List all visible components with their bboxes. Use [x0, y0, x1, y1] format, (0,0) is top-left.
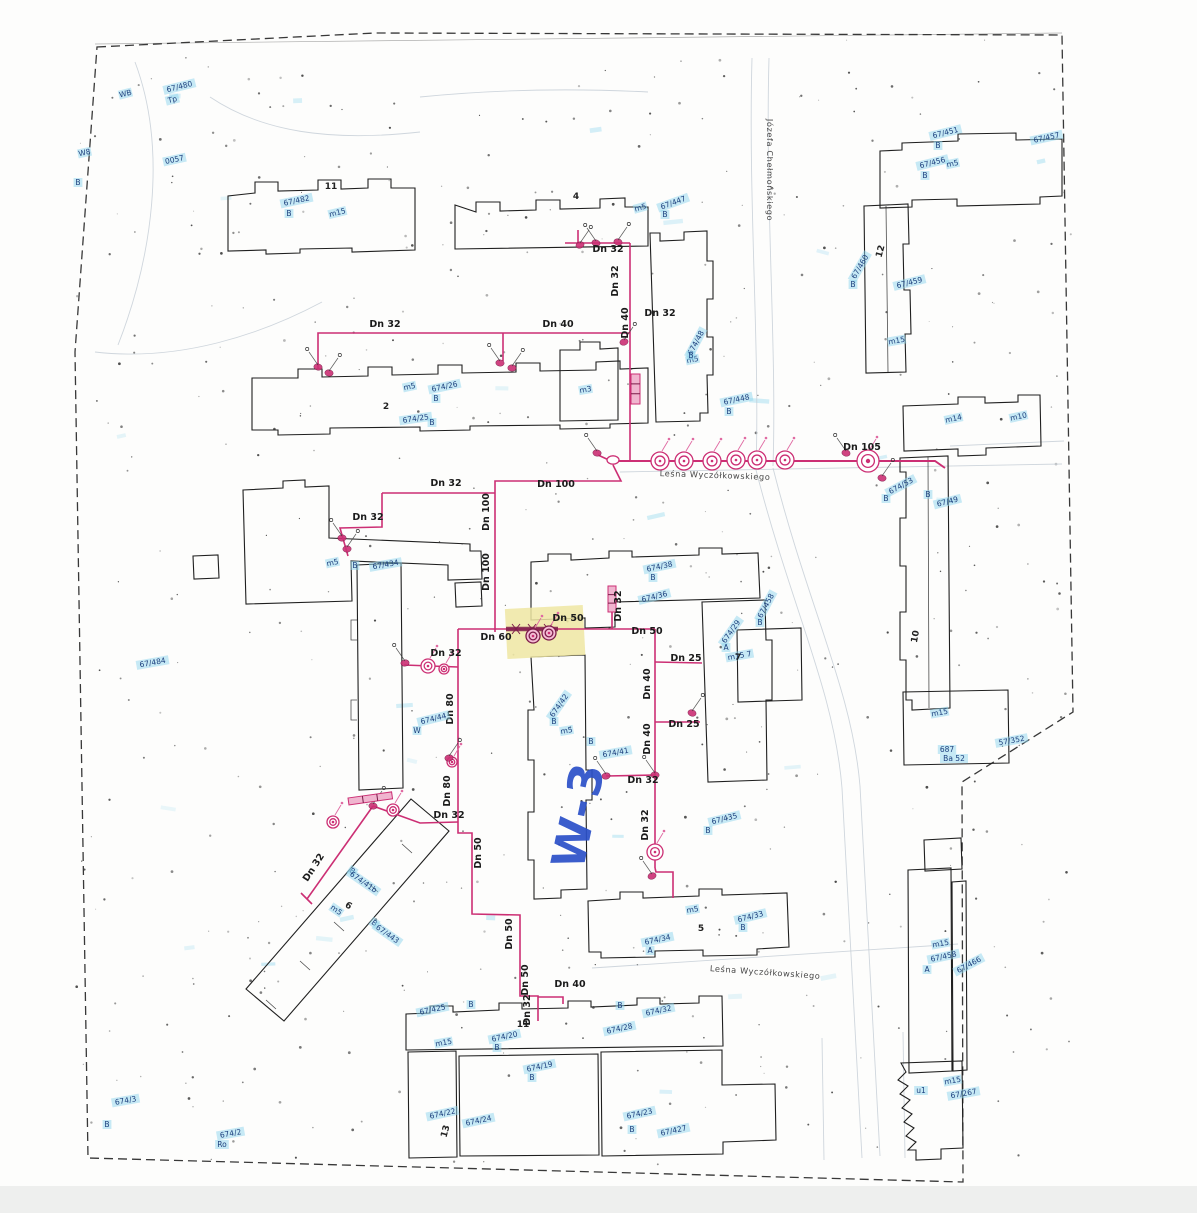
scan-speckle: [304, 156, 305, 157]
scan-speckle: [411, 244, 414, 247]
scan-speckle: [700, 1061, 703, 1064]
scan-speckle: [359, 369, 360, 370]
scan-speckle: [198, 396, 199, 397]
pipe-diameter-label: Dn 60: [480, 632, 512, 643]
scan-speckle: [299, 518, 300, 519]
scan-speckle: [736, 554, 737, 555]
scan-speckle: [669, 645, 672, 648]
scan-speckle: [669, 1103, 672, 1106]
scan-speckle: [514, 977, 516, 979]
scan-speckle: [916, 655, 919, 658]
scan-speckle: [507, 215, 508, 216]
scan-speckle: [1019, 745, 1021, 747]
street-edge-line: [756, 470, 862, 1158]
scan-speckle: [131, 877, 133, 879]
scan-speckle: [871, 140, 873, 142]
parcel-number-label: B: [551, 717, 556, 726]
scan-speckle: [441, 186, 442, 187]
scan-speckle: [635, 1138, 636, 1139]
scan-speckle: [605, 890, 607, 892]
parcel-number-label: 67/434: [372, 558, 400, 571]
scan-speckle: [1037, 291, 1040, 294]
parcel-number-label: B: [529, 1073, 534, 1082]
scan-speckle: [341, 109, 342, 110]
scan-speckle: [309, 952, 312, 955]
scan-speckle: [896, 185, 899, 188]
street-edge-line: [773, 468, 880, 1156]
parcel-number-label: 674/41: [602, 746, 630, 759]
pipe-diameter-label: Dn 32: [613, 590, 624, 621]
scan-speckle: [567, 937, 569, 939]
scan-speckle: [238, 776, 240, 778]
scan-speckle: [301, 74, 303, 76]
scan-speckle: [116, 1080, 117, 1081]
parcel-number-label: B: [352, 561, 357, 570]
scan-speckle: [900, 926, 902, 928]
scan-speckle: [586, 574, 588, 576]
scan-speckle: [374, 620, 376, 622]
scan-speckle: [860, 1057, 861, 1058]
scan-speckle: [984, 40, 985, 41]
scan-speckle: [399, 458, 401, 460]
scan-smudge: [820, 973, 836, 981]
scan-speckle: [223, 1101, 224, 1102]
scan-speckle: [642, 637, 643, 638]
scan-speckle: [1068, 1041, 1070, 1043]
scan-speckle: [407, 608, 408, 609]
parcel-number-label: 674/26: [431, 379, 459, 393]
scan-speckle: [353, 734, 356, 737]
scan-speckle: [824, 657, 826, 659]
pipe-diameter-label: Dn 50: [552, 613, 584, 624]
scan-speckle: [193, 211, 194, 212]
connection-leader-line: [646, 760, 655, 773]
scan-speckle: [1053, 88, 1055, 90]
scan-speckle: [535, 582, 538, 585]
scan-speckle: [974, 564, 976, 566]
scan-speckle: [483, 1161, 484, 1162]
scan-speckle: [940, 571, 941, 572]
hydrant-symbol: [748, 437, 767, 469]
parcel-number-label: A: [924, 965, 930, 974]
parcel-number-label: 67/427: [660, 1123, 688, 1137]
parcel-number-label: B: [662, 210, 667, 219]
scan-speckle: [843, 940, 845, 942]
parcel-number-label: 674/41b: [348, 869, 379, 894]
scan-speckle: [766, 789, 767, 790]
scan-smudge: [659, 1090, 672, 1094]
scan-speckle: [1000, 418, 1003, 421]
street-edge-line: [950, 441, 1064, 446]
scan-speckle: [301, 192, 302, 193]
scan-speckle: [304, 1018, 307, 1021]
pipe-diameter-label: Dn 32: [301, 852, 327, 884]
scan-speckle: [75, 985, 78, 988]
scan-speckle: [1046, 1048, 1048, 1050]
scan-speckle: [643, 950, 645, 952]
scan-speckle: [705, 572, 706, 573]
scan-speckle: [166, 1024, 168, 1026]
scan-speckle: [311, 659, 312, 660]
scan-speckle: [457, 407, 458, 408]
scan-speckle: [233, 139, 236, 142]
scan-speckle: [109, 1030, 111, 1032]
parcel-number-label: 674/2: [219, 1127, 242, 1140]
parcel-number-label: 67/448: [723, 392, 751, 406]
scan-speckle: [795, 774, 798, 777]
scan-smudge: [340, 915, 355, 922]
parcel-number-label: W: [413, 726, 421, 735]
parcel-number-label: 0057: [164, 153, 185, 166]
scan-speckle: [120, 425, 123, 428]
scan-speckle: [159, 550, 160, 551]
scan-speckle: [398, 1091, 401, 1094]
scan-speckle: [898, 1027, 900, 1029]
connection-leader-line: [618, 227, 627, 240]
scan-speckle: [1050, 997, 1053, 1000]
building-outline: [357, 563, 403, 790]
scan-speckle: [929, 321, 930, 322]
parcel-number-label: B: [433, 394, 438, 403]
scan-speckle: [868, 922, 869, 923]
scan-speckle: [366, 804, 368, 806]
scan-speckle: [412, 788, 415, 791]
building-outline: [455, 582, 482, 607]
scan-speckle: [543, 773, 545, 775]
scan-speckle: [807, 1124, 809, 1126]
scan-speckle: [690, 565, 692, 567]
scan-speckle: [1030, 1028, 1032, 1030]
scan-speckle: [931, 268, 932, 269]
scan-speckle: [204, 747, 207, 750]
scan-speckle: [369, 545, 372, 548]
building-number: 4: [573, 192, 579, 202]
scan-speckle: [1013, 239, 1016, 242]
scan-speckle: [1017, 524, 1020, 527]
scan-speckle: [557, 501, 559, 503]
parcel-number-label: B: [75, 178, 80, 187]
parcel-number-label: 67/458: [930, 949, 958, 963]
scan-speckle: [151, 78, 152, 79]
scan-speckle: [662, 502, 664, 504]
hydrant-flag-icon: [714, 441, 720, 451]
scan-speckle: [412, 358, 415, 361]
scan-speckle: [675, 543, 678, 546]
scan-smudge: [663, 219, 683, 225]
service-connection-symbol: [324, 353, 341, 376]
scan-speckle: [94, 135, 96, 137]
scan-speckle: [268, 942, 270, 944]
scan-speckle: [664, 996, 666, 998]
scan-speckle: [723, 356, 724, 357]
scan-speckle: [986, 482, 989, 485]
scan-speckle: [741, 613, 743, 615]
scan-speckle: [479, 115, 480, 116]
parcel-number-label: B: [650, 573, 655, 582]
scan-speckle: [269, 106, 271, 108]
scan-speckle: [950, 629, 953, 632]
building-outline: [252, 361, 648, 435]
scan-speckle: [463, 1001, 464, 1002]
scan-speckle: [312, 812, 315, 815]
parcel-number-label: m15: [328, 206, 347, 219]
scan-speckle: [1060, 716, 1062, 718]
scan-speckle: [975, 898, 977, 900]
parcel-number-label: m15: [434, 1037, 452, 1049]
scan-speckle: [249, 203, 251, 205]
scan-speckle: [650, 134, 651, 135]
scan-speckle: [103, 898, 105, 900]
scan-speckle: [912, 808, 913, 809]
scan-speckle: [469, 528, 471, 530]
building-number: 12: [875, 244, 888, 259]
scan-speckle: [770, 848, 771, 849]
water-pipe-segment: [318, 333, 630, 369]
scan-speckle: [299, 1046, 302, 1049]
scan-speckle: [174, 745, 175, 746]
pipe-diameter-label: Dn 50: [504, 918, 515, 950]
valve-bar-symbol: [631, 374, 640, 404]
scan-speckle: [188, 1097, 191, 1100]
scan-speckle: [91, 836, 92, 837]
scan-speckle: [461, 1027, 463, 1029]
parcel-number-label: B: [883, 494, 888, 503]
scan-speckle: [738, 224, 741, 227]
scan-speckle: [565, 1022, 567, 1024]
scan-speckle: [762, 571, 764, 573]
scan-smudge: [117, 433, 127, 439]
scan-speckle: [595, 964, 596, 965]
parcel-number-label: B: [757, 618, 762, 627]
scan-speckle: [351, 1129, 354, 1132]
scan-speckle: [578, 85, 580, 87]
pipe-diameter-label: Dn 80: [442, 775, 453, 807]
scan-speckle: [208, 66, 210, 68]
scan-speckle: [455, 1013, 458, 1016]
scan-speckle: [944, 1058, 946, 1060]
scan-speckle: [491, 753, 492, 754]
building-number: 5: [698, 924, 704, 934]
building-outline: [243, 480, 482, 604]
building-outline: [601, 1050, 776, 1156]
scan-speckle: [806, 995, 808, 997]
hydrant-flag-icon: [335, 805, 341, 815]
scan-smudge: [220, 196, 231, 200]
building-outline: [903, 395, 1041, 456]
scan-speckle: [310, 736, 312, 738]
scan-speckle: [887, 631, 889, 633]
scan-speckle: [837, 663, 839, 665]
scan-speckle: [220, 347, 221, 348]
scan-speckle: [1013, 1051, 1015, 1053]
scan-speckle: [592, 538, 594, 540]
scan-speckle: [392, 882, 394, 884]
scan-speckle: [680, 60, 681, 61]
scan-speckle: [200, 248, 202, 250]
scan-smudge: [293, 98, 302, 103]
scan-speckle: [882, 274, 884, 276]
parcel-number-label: WB: [118, 88, 132, 100]
parcel-number-label: Ba 52: [943, 754, 965, 763]
scan-speckle: [111, 97, 113, 99]
scan-speckle: [820, 385, 821, 386]
scan-speckle: [300, 415, 301, 416]
connection-leader-line: [309, 352, 318, 365]
scan-speckle: [249, 979, 252, 982]
parcel-number-label: B: [286, 209, 291, 218]
scan-speckle: [1056, 375, 1058, 377]
scan-speckle: [683, 412, 685, 414]
scan-speckle: [719, 929, 721, 931]
scan-speckle: [487, 421, 489, 423]
scan-speckle: [159, 138, 162, 141]
scan-speckle: [225, 145, 227, 147]
parcel-number-label: 67/484: [139, 656, 167, 669]
scan-smudge: [816, 249, 829, 256]
scan-speckle: [526, 251, 528, 253]
scan-speckle: [192, 1106, 193, 1107]
scan-speckle: [134, 335, 136, 337]
scan-speckle: [198, 253, 200, 255]
scan-speckle: [796, 196, 798, 198]
scan-speckle: [792, 622, 793, 623]
scan-speckle: [503, 1052, 504, 1053]
scan-speckle: [797, 670, 798, 671]
scan-speckle: [703, 1037, 705, 1039]
scan-speckle: [686, 885, 689, 888]
scan-speckle: [383, 749, 385, 751]
parcel-number-label: B: [705, 826, 710, 835]
parcel-number-label: Ro: [217, 1140, 227, 1149]
scan-speckle: [744, 288, 745, 289]
scan-speckle: [413, 900, 415, 902]
scan-speckle: [975, 632, 977, 634]
scan-speckle: [877, 1146, 879, 1148]
scan-speckle: [143, 757, 145, 759]
parcel-number-label: B: [688, 351, 693, 360]
scan-speckle: [310, 405, 312, 407]
scan-speckle: [348, 1051, 351, 1054]
scan-speckle: [128, 699, 130, 701]
parcel-number-label: 67/49: [936, 495, 959, 509]
scan-speckle: [159, 712, 161, 714]
scan-speckle: [312, 1127, 313, 1128]
scan-speckle: [232, 232, 234, 234]
scan-speckle: [627, 383, 629, 385]
scan-speckle: [525, 216, 528, 219]
scan-speckle: [247, 937, 249, 939]
parcel-number-label: m10: [1009, 410, 1028, 422]
scan-speckle: [1056, 583, 1058, 585]
scan-speckle: [573, 117, 575, 119]
scan-speckle: [1065, 871, 1068, 874]
scan-speckle: [257, 454, 259, 456]
scan-speckle: [911, 97, 913, 99]
scan-speckle: [249, 957, 251, 959]
parcel-number-label: m3: [579, 384, 593, 395]
scan-speckle: [1027, 678, 1028, 679]
scan-speckle: [338, 166, 341, 169]
parcel-number-label: m15: [943, 1075, 961, 1087]
connection-leader-line: [491, 348, 500, 361]
scan-speckle: [343, 1011, 344, 1012]
scan-speckle: [303, 910, 304, 911]
scan-speckle: [365, 950, 367, 952]
parcel-number-label: m15: [887, 335, 905, 347]
building-number: 7: [735, 653, 741, 663]
scan-speckle: [780, 611, 782, 613]
scan-speckle: [313, 450, 315, 452]
scan-speckle: [353, 737, 355, 739]
scan-smudge: [612, 835, 623, 838]
scan-speckle: [846, 40, 847, 41]
building-outline: [193, 555, 219, 579]
pipe-diameter-label: Dn 100: [481, 493, 492, 531]
scan-speckle: [654, 76, 655, 77]
parcel-number-label: B: [617, 1001, 622, 1010]
scan-speckle: [99, 669, 101, 671]
scan-speckle: [800, 95, 802, 97]
scan-speckle: [626, 791, 628, 793]
hydrant-flag-icon: [657, 833, 663, 843]
hydrant-symbol: [703, 438, 722, 470]
scan-speckle: [633, 519, 635, 521]
scan-speckle: [948, 393, 950, 395]
scan-speckle: [473, 487, 475, 489]
scan-speckle: [1041, 952, 1044, 955]
scan-smudge: [495, 386, 508, 390]
scan-speckle: [243, 307, 244, 308]
hydrant-symbol: [675, 438, 694, 470]
scan-speckle: [446, 882, 447, 883]
scan-speckle: [637, 1070, 639, 1072]
scan-speckle: [937, 552, 938, 553]
scan-speckle: [172, 175, 174, 177]
scan-speckle: [974, 342, 976, 344]
scan-speckle: [320, 766, 321, 767]
scan-speckle: [692, 1015, 694, 1017]
scan-speckle: [345, 827, 346, 828]
scan-speckle: [90, 1121, 92, 1123]
scan-speckle: [568, 967, 570, 969]
scan-speckle: [969, 546, 970, 547]
hydrant-flag-icon: [738, 440, 744, 450]
parcel-number-label: B: [922, 171, 927, 180]
building-outline: [588, 889, 789, 958]
scan-speckle: [877, 1005, 879, 1007]
connection-leader-line: [347, 534, 356, 547]
scan-speckle: [192, 978, 194, 980]
scan-smudge: [784, 765, 801, 770]
scan-speckle: [212, 132, 214, 134]
building-outline: [924, 838, 962, 871]
street-name: Józefa Chełmońskiego: [765, 118, 775, 221]
scan-speckle: [550, 590, 552, 592]
path-line: [118, 62, 153, 345]
pipe-diameter-label: Dn 32: [433, 810, 464, 821]
scan-speckle: [258, 176, 261, 179]
scan-speckle: [623, 538, 624, 539]
scan-speckle: [436, 757, 437, 758]
building-outline: [737, 628, 802, 702]
parcel-number-label: 67/457: [1033, 130, 1061, 144]
scan-speckle: [1006, 1014, 1008, 1016]
building-number: 11: [325, 182, 338, 192]
scan-speckle: [1052, 312, 1054, 314]
pipe-diameter-label: Dn 32: [644, 308, 675, 319]
scan-speckle: [211, 305, 212, 306]
labels-layer: Leśna WyczółkowskiegoLeśna Wyczółkowskie…: [74, 78, 1064, 1149]
